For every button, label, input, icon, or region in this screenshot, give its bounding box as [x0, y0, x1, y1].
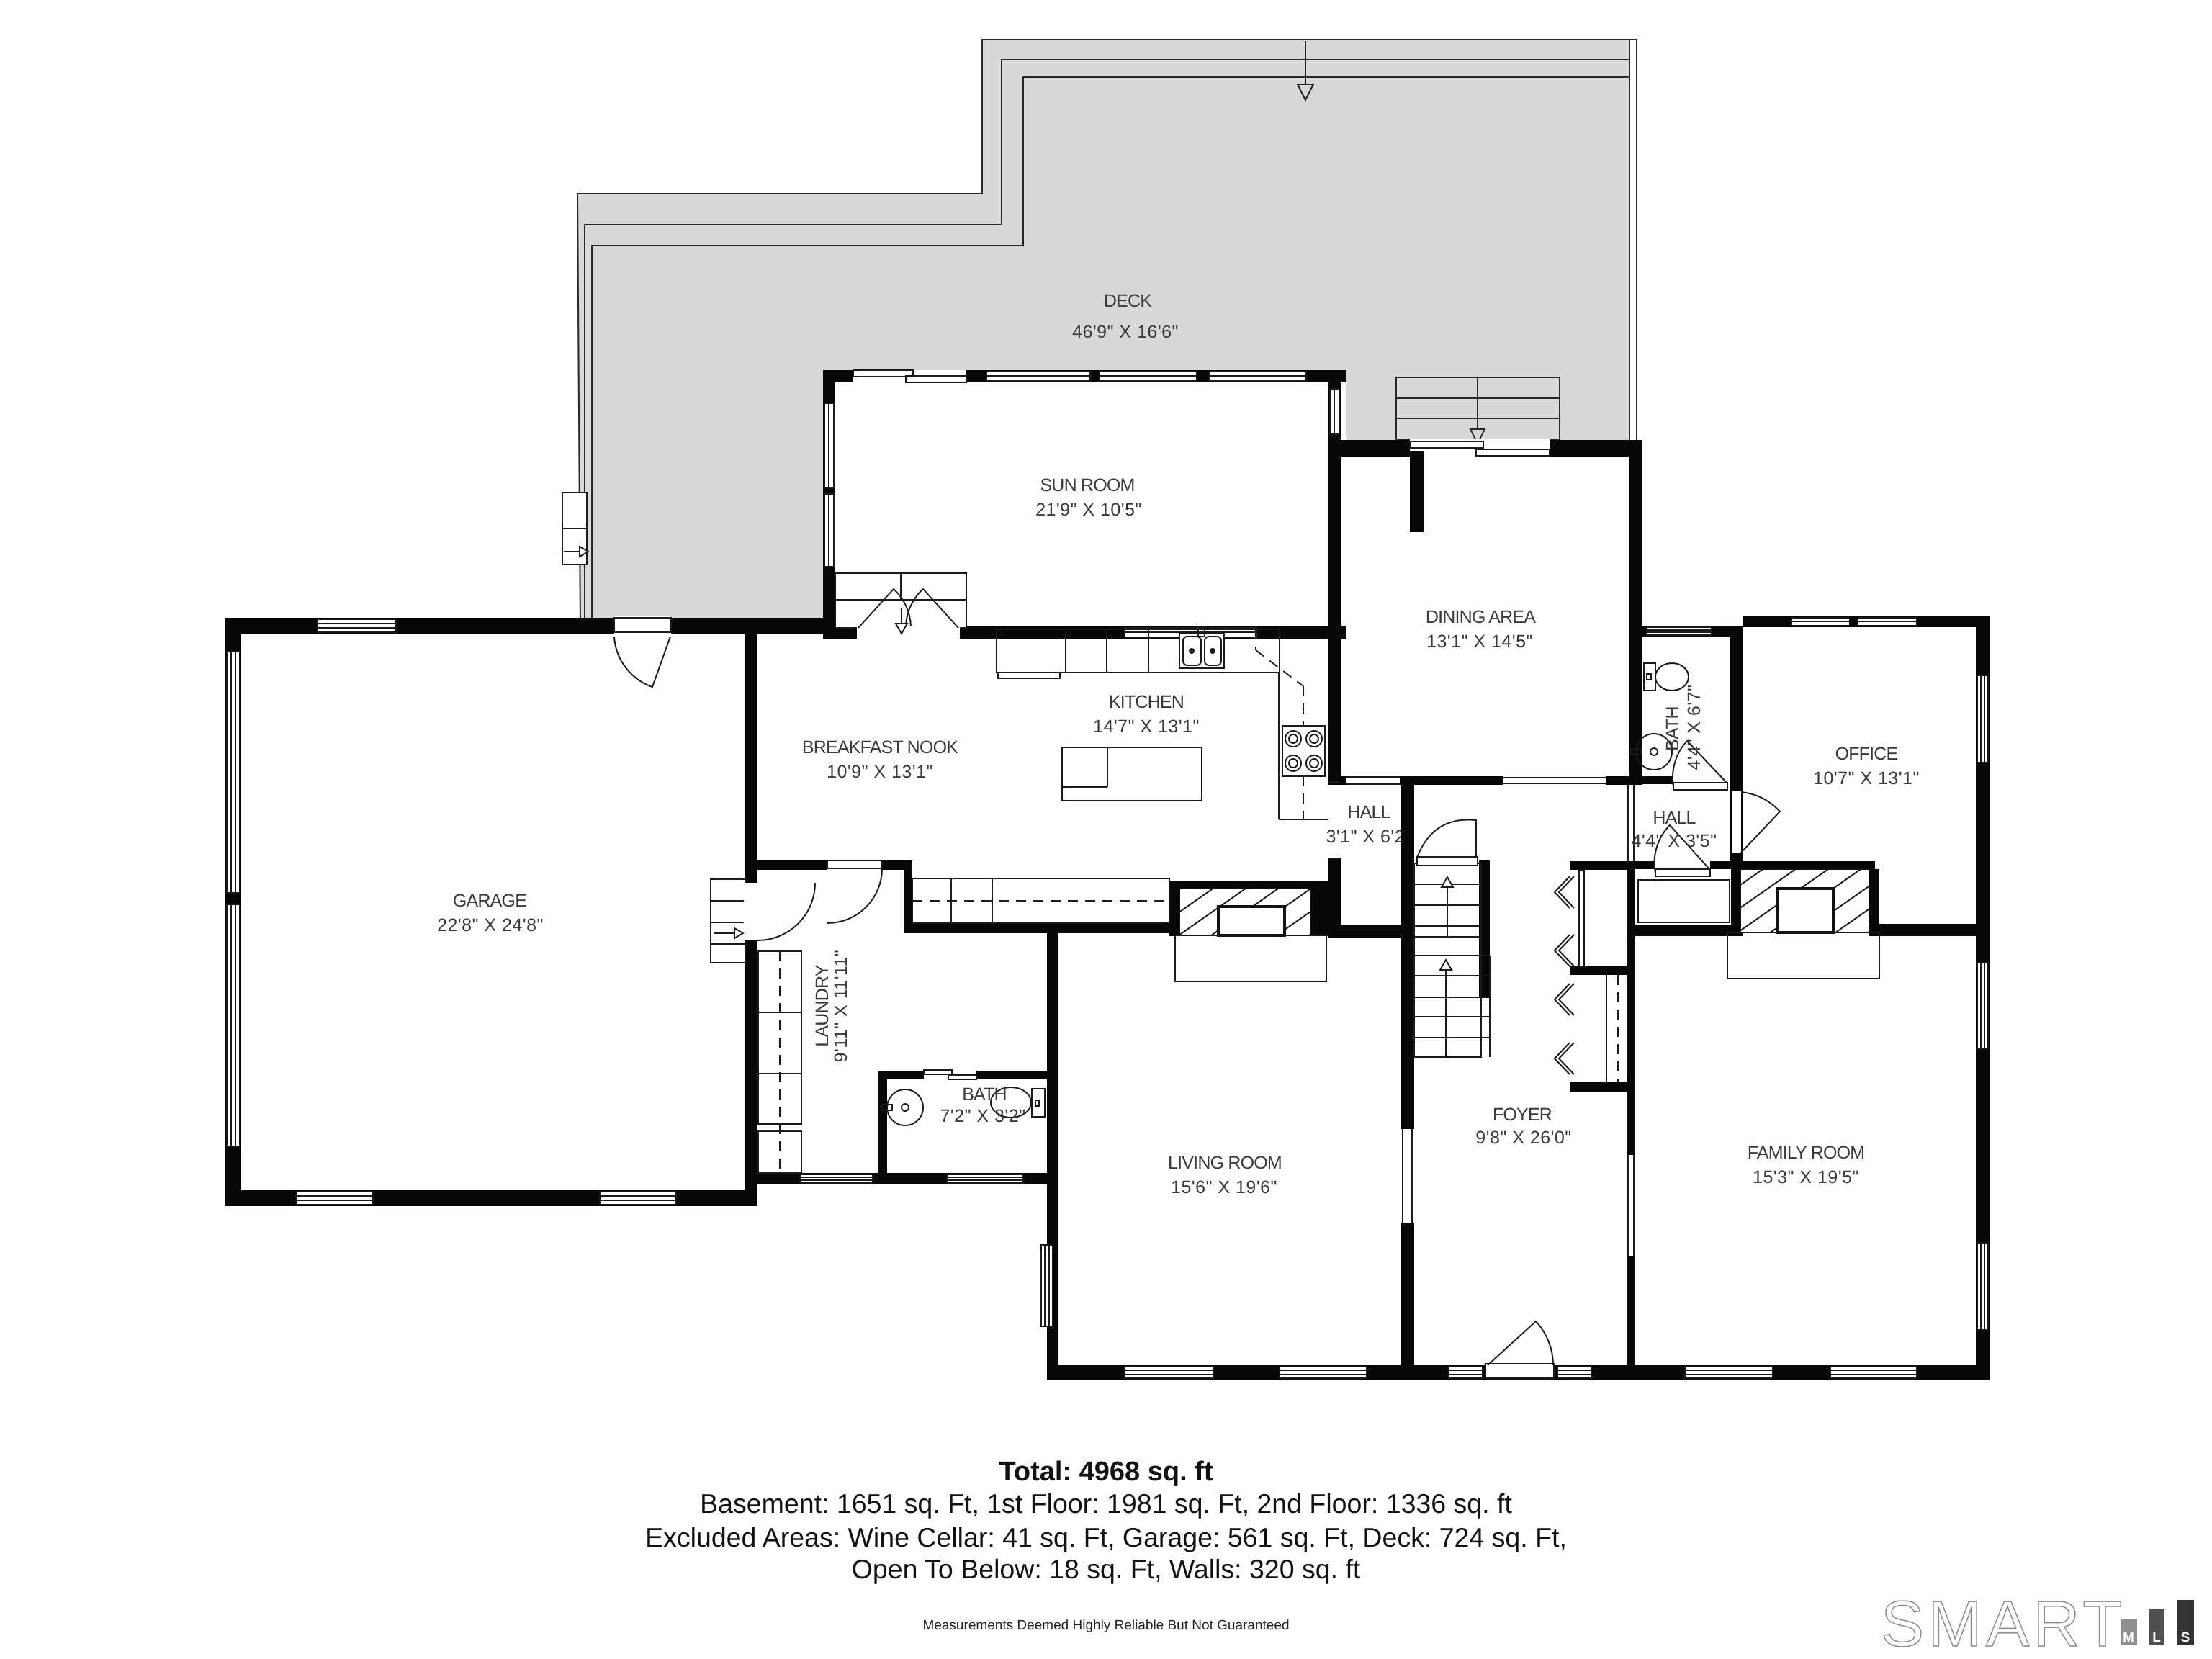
svg-text:7'2" X 3'2": 7'2" X 3'2"	[940, 1106, 1026, 1126]
svg-text:BATH: BATH	[1663, 706, 1683, 751]
svg-text:Measurements Deemed Highly Rel: Measurements Deemed Highly Reliable But …	[922, 1618, 1289, 1633]
svg-text:M: M	[2123, 1630, 2134, 1645]
svg-text:Excluded Areas: Wine Cellar: 4: Excluded Areas: Wine Cellar: 41 sq. Ft, …	[645, 1522, 1567, 1552]
svg-text:10'9" X 13'1": 10'9" X 13'1"	[827, 762, 933, 782]
svg-text:L: L	[2152, 1630, 2161, 1645]
svg-text:SUN ROOM: SUN ROOM	[1040, 475, 1134, 495]
svg-text:BATH: BATH	[962, 1084, 1007, 1105]
svg-text:HALL: HALL	[1347, 802, 1390, 822]
svg-text:SMART: SMART	[1881, 1588, 2126, 1659]
svg-text:Open To Below: 18 sq. Ft, Wall: Open To Below: 18 sq. Ft, Walls: 320 sq.…	[852, 1554, 1361, 1584]
svg-text:21'9" X 10'5": 21'9" X 10'5"	[1035, 500, 1142, 520]
svg-text:LAUNDRY: LAUNDRY	[812, 964, 832, 1047]
svg-text:GARAGE: GARAGE	[453, 891, 526, 911]
svg-text:4'4" X 6'7": 4'4" X 6'7"	[1684, 685, 1704, 770]
svg-text:Basement: 1651 sq. Ft, 1st Flo: Basement: 1651 sq. Ft, 1st Floor: 1981 s…	[700, 1488, 1512, 1519]
svg-text:9'11" X 11'11": 9'11" X 11'11"	[831, 950, 851, 1063]
svg-text:LIVING ROOM: LIVING ROOM	[1168, 1153, 1282, 1173]
svg-text:9'8" X 26'0": 9'8" X 26'0"	[1475, 1128, 1571, 1148]
svg-text:4'4" X 3'5": 4'4" X 3'5"	[1632, 831, 1717, 851]
svg-text:KITCHEN: KITCHEN	[1109, 692, 1184, 712]
svg-text:22'8" X 24'8": 22'8" X 24'8"	[437, 915, 544, 935]
svg-text:S: S	[2181, 1630, 2190, 1645]
svg-text:15'3" X 19'5": 15'3" X 19'5"	[1753, 1167, 1859, 1187]
svg-text:DINING AREA: DINING AREA	[1426, 607, 1536, 627]
svg-text:Total: 4968 sq. ft: Total: 4968 sq. ft	[999, 1457, 1213, 1487]
svg-text:3'1" X 6'2": 3'1" X 6'2"	[1326, 827, 1412, 847]
svg-text:BREAKFAST NOOK: BREAKFAST NOOK	[802, 737, 958, 757]
svg-text:13'1" X 14'5": 13'1" X 14'5"	[1426, 631, 1533, 652]
svg-text:FOYER: FOYER	[1493, 1105, 1552, 1125]
svg-text:HALL: HALL	[1653, 808, 1696, 828]
svg-text:DECK: DECK	[1104, 291, 1152, 311]
svg-text:15'6" X 19'6": 15'6" X 19'6"	[1171, 1177, 1277, 1197]
svg-text:46'9" X 16'6": 46'9" X 16'6"	[1072, 322, 1179, 342]
svg-text:OFFICE: OFFICE	[1835, 744, 1898, 764]
svg-text:10'7" X 13'1": 10'7" X 13'1"	[1813, 768, 1920, 788]
svg-text:FAMILY ROOM: FAMILY ROOM	[1748, 1143, 1865, 1163]
svg-text:14'7" X 13'1": 14'7" X 13'1"	[1093, 716, 1200, 737]
